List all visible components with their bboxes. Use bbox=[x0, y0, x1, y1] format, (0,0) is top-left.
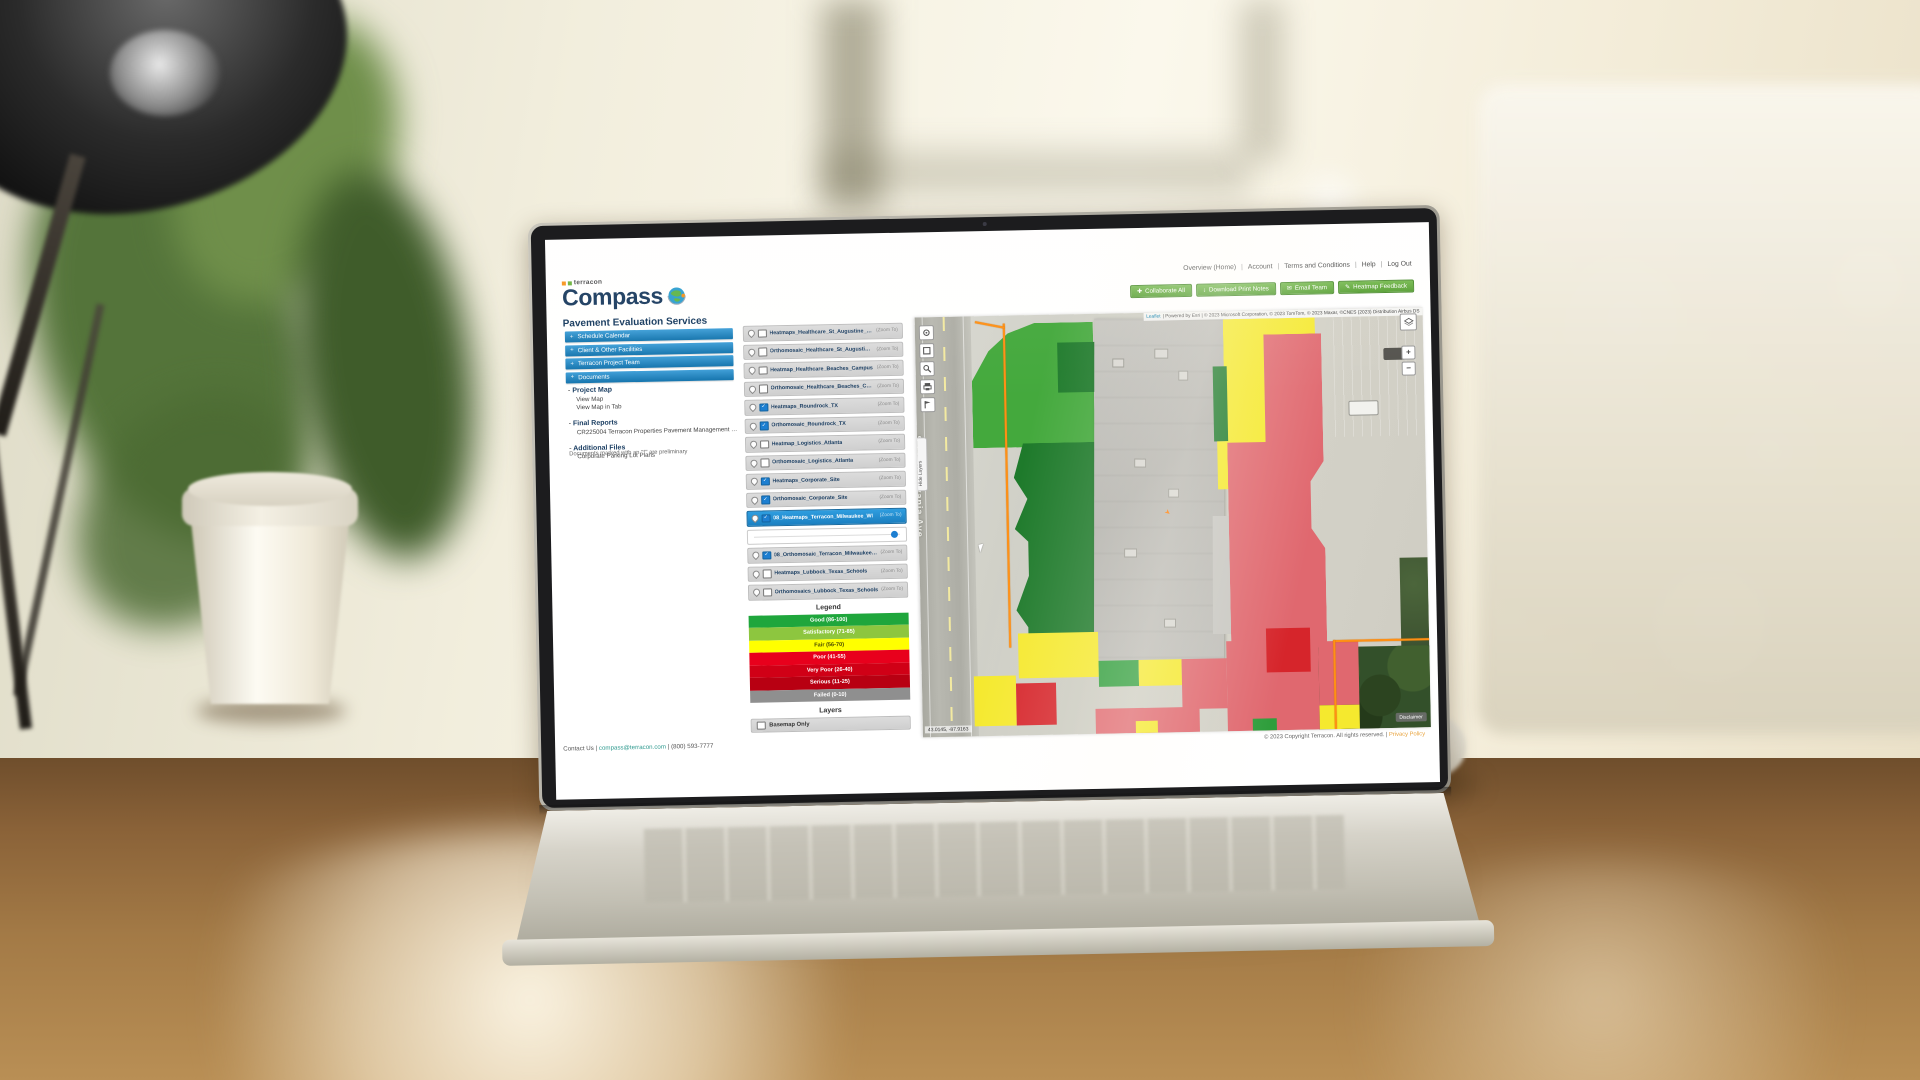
layer-checkbox[interactable]: ✓ bbox=[762, 514, 771, 523]
sidebar-section: Final ReportsCR225004 Terracon Propertie… bbox=[569, 417, 739, 438]
layer-checkbox[interactable] bbox=[758, 347, 767, 356]
sidebar-sections: Project MapView MapView Map in TabFinal … bbox=[568, 384, 740, 470]
copyright-text: © 2023 Copyright Terracon. All rights re… bbox=[1264, 732, 1387, 740]
map-pin-icon bbox=[749, 440, 759, 450]
map-toolbar bbox=[919, 325, 936, 412]
layer-zoom-link[interactable]: (Zoom To) bbox=[877, 365, 899, 370]
extent-button[interactable] bbox=[919, 343, 934, 358]
laptop-bezel: Overview (Home)|Account|Terms and Condit… bbox=[531, 208, 1448, 808]
layer-row-heatmap-healthcare-beaches-campus[interactable]: Heatmap_Healthcare_Beaches_Campus(Zoom T… bbox=[743, 360, 903, 379]
map-pin-icon bbox=[751, 550, 761, 560]
basemap-only-toggle[interactable]: Basemap Only bbox=[751, 716, 911, 733]
download-icon: ↓ bbox=[1203, 287, 1206, 293]
cell-fair bbox=[974, 675, 1017, 726]
layer-checkbox[interactable] bbox=[758, 329, 767, 338]
cell-fair bbox=[1319, 705, 1359, 730]
polygon-good-green-main bbox=[1013, 442, 1099, 658]
locate-button[interactable] bbox=[919, 325, 934, 340]
button-label: Email Team bbox=[1295, 284, 1327, 292]
map-pin-icon bbox=[748, 421, 758, 431]
mouse-cursor bbox=[978, 544, 985, 553]
layer-label: Orthomosaics_Lubbock_Texas_Schools bbox=[775, 587, 879, 595]
globe-icon bbox=[667, 286, 686, 305]
accordion-label: Terracon Project Team bbox=[578, 359, 640, 367]
nav-separator: | bbox=[1381, 261, 1383, 268]
layer-label: Heatmaps_Healthcare_St_Augustine_Campus bbox=[769, 328, 873, 336]
nav-separator: | bbox=[1277, 263, 1279, 270]
layer-zoom-link[interactable]: (Zoom To) bbox=[879, 495, 901, 500]
polygon-good-green-patch bbox=[1057, 342, 1096, 393]
layer-checkbox[interactable]: ✓ bbox=[762, 551, 771, 560]
hide-layers-label: Hide Layers bbox=[918, 461, 924, 487]
map-pin-icon bbox=[749, 458, 759, 468]
expand-icon: + bbox=[570, 361, 574, 367]
email-team-button[interactable]: ✉Email Team bbox=[1280, 281, 1334, 295]
layer-row-orthomosaic-roundrock-tx[interactable]: ✓Orthomosaic_Roundrock_TX(Zoom To) bbox=[745, 415, 905, 434]
expand-icon: + bbox=[570, 334, 574, 340]
document-layer-list: Heatmaps_Healthcare_St_Augustine_Campus(… bbox=[743, 323, 908, 601]
map-pin-icon bbox=[747, 366, 757, 376]
cell-verypoor bbox=[1266, 628, 1311, 673]
layer-zoom-link[interactable]: (Zoom To) bbox=[876, 347, 898, 352]
parking-stall-lines bbox=[1333, 315, 1423, 437]
accordion-label: Schedule Calendar bbox=[577, 332, 630, 340]
layer-checkbox[interactable]: ✓ bbox=[760, 421, 769, 430]
contact-footer: Contact Us | compass@terracon.com | (800… bbox=[563, 743, 713, 753]
layer-row-orthomosaic-logistics-atlanta[interactable]: Orthomosaic_Logistics_Atlanta(Zoom To) bbox=[745, 452, 905, 471]
expand-icon: + bbox=[570, 347, 574, 353]
compass-wordmark: Compass bbox=[562, 284, 663, 309]
layer-zoom-link[interactable]: (Zoom To) bbox=[878, 439, 900, 444]
map-pin-icon bbox=[751, 569, 761, 579]
zoom-box-button[interactable] bbox=[919, 361, 934, 376]
download-print-notes-button[interactable]: ↓Download Print Notes bbox=[1196, 282, 1276, 297]
photo-scene: Overview (Home)|Account|Terms and Condit… bbox=[0, 0, 1920, 1080]
brand-block: terracon Compass bbox=[562, 277, 686, 309]
layer-checkbox[interactable] bbox=[759, 384, 768, 393]
accordion-label: Client & Other Facilities bbox=[578, 345, 643, 353]
layer-label: 08_Orthomosaic_Terracon_Milwaukee_WI bbox=[774, 550, 878, 558]
map-pin-icon bbox=[750, 495, 760, 505]
building-roof bbox=[1094, 319, 1224, 665]
contact-phone: (800) 593-7777 bbox=[671, 743, 713, 751]
hide-layers-tab[interactable]: Hide Layers bbox=[917, 437, 928, 491]
layers-column: Heatmaps_Healthcare_St_Augustine_Campus(… bbox=[743, 323, 911, 733]
layer-checkbox[interactable] bbox=[759, 366, 768, 375]
legend-entry-failed: Failed (0-10) bbox=[750, 687, 910, 703]
contact-label: Contact Us bbox=[563, 745, 594, 753]
app-screen: Overview (Home)|Account|Terms and Condit… bbox=[545, 222, 1440, 800]
nav-link-log-out[interactable]: Log Out bbox=[1387, 260, 1411, 267]
layer-label: Orthomosaic_Logistics_Atlanta bbox=[772, 458, 853, 466]
cell-fair bbox=[1139, 659, 1183, 686]
tree-strip bbox=[1400, 557, 1430, 648]
zoom-controls: + − bbox=[1401, 345, 1416, 375]
map-pin-icon bbox=[746, 329, 756, 339]
cell-fair bbox=[1136, 721, 1158, 733]
webcam bbox=[983, 222, 987, 226]
layer-label: Heatmaps_Corporate_Site bbox=[772, 477, 840, 484]
compass-app: Overview (Home)|Account|Terms and Condit… bbox=[545, 222, 1440, 800]
background-monitor bbox=[1478, 84, 1920, 734]
map-pin-icon bbox=[748, 384, 758, 394]
cup-lid-top bbox=[188, 472, 352, 506]
feedback-icon: ✎ bbox=[1345, 284, 1350, 290]
cup-body bbox=[188, 524, 352, 704]
layer-zoom-link[interactable]: (Zoom To) bbox=[877, 384, 899, 389]
privacy-policy-link[interactable]: Privacy Policy bbox=[1389, 731, 1425, 738]
layer-checkbox[interactable] bbox=[760, 440, 769, 449]
heatmap-feedback-button[interactable]: ✎Heatmap Feedback bbox=[1338, 279, 1414, 294]
site-boundary-line bbox=[975, 321, 1005, 328]
layer-row-orthomosaic-healthcare-st-augustine-campus[interactable]: Orthomosaic_Healthcare_St_Augustine_Camp… bbox=[743, 341, 903, 360]
layer-zoom-link[interactable]: (Zoom To) bbox=[878, 402, 900, 407]
layer-row-08-orthomosaic-terracon-milwaukee-wi[interactable]: ✓08_Orthomosaic_Terracon_Milwaukee_WI(Zo… bbox=[747, 545, 907, 564]
layer-label: 08_Heatmaps_Terracon_Milwaukee_WI bbox=[773, 513, 873, 521]
polygon-good-green-strip bbox=[1213, 366, 1229, 441]
slider-track bbox=[754, 533, 900, 537]
cell-verypoor bbox=[1016, 683, 1057, 726]
layer-row-heatmaps-healthcare-st-augustine-campus[interactable]: Heatmaps_Healthcare_St_Augustine_Campus(… bbox=[743, 323, 903, 342]
layers-title: Layers bbox=[750, 706, 910, 716]
cell-poor bbox=[1318, 641, 1359, 706]
accordion-documents[interactable]: +Documents bbox=[566, 369, 734, 383]
copyright-line: © 2023 Copyright Terracon. All rights re… bbox=[1264, 731, 1425, 740]
accordion-label: Documents bbox=[578, 373, 609, 381]
layer-zoom-link[interactable]: (Zoom To) bbox=[879, 476, 901, 481]
layer-checkbox[interactable]: ✓ bbox=[759, 403, 768, 412]
accordion-client-other-facilities[interactable]: +Client & Other Facilities bbox=[565, 342, 733, 356]
map-pin-icon bbox=[752, 587, 762, 597]
email-icon: ✉ bbox=[1287, 285, 1292, 291]
parked-car-white bbox=[1348, 400, 1378, 416]
layer-zoom-link[interactable]: (Zoom To) bbox=[881, 587, 903, 592]
layer-checkbox[interactable]: ✓ bbox=[761, 477, 770, 486]
layer-zoom-link[interactable]: (Zoom To) bbox=[876, 328, 898, 333]
button-label: Heatmap Feedback bbox=[1353, 283, 1407, 291]
zoom-in-button[interactable]: + bbox=[1401, 345, 1415, 359]
pci-legend: Good (86-100)Satisfactory (71-85)Fair (5… bbox=[749, 612, 911, 703]
layer-row-orthomosaics-lubbock-texas-schools[interactable]: Orthomosaics_Lubbock_Texas_Schools(Zoom … bbox=[748, 582, 908, 601]
layer-label: Orthomosaic_Healthcare_St_Augustine_Camp… bbox=[770, 347, 874, 355]
layer-checkbox[interactable]: ✓ bbox=[761, 495, 770, 504]
section-link[interactable]: View Map in Tab bbox=[576, 401, 738, 413]
layer-row-08-heatmaps-terracon-milwaukee-wi[interactable]: ✓08_Heatmaps_Terracon_Milwaukee_WI(Zoom … bbox=[746, 508, 906, 527]
layer-checkbox[interactable] bbox=[763, 588, 772, 597]
map-pin-icon bbox=[749, 476, 759, 486]
layer-label: Heatmap_Logistics_Atlanta bbox=[772, 440, 843, 447]
nav-link-help[interactable]: Help bbox=[1362, 261, 1376, 268]
leaflet-link[interactable]: Leaflet bbox=[1146, 314, 1161, 319]
collaborate-all-button[interactable]: ✚Collaborate All bbox=[1130, 284, 1192, 298]
layer-row-heatmap-logistics-atlanta[interactable]: Heatmap_Logistics_Atlanta(Zoom To) bbox=[745, 434, 905, 453]
layer-zoom-link[interactable]: (Zoom To) bbox=[879, 458, 901, 463]
layer-label: Heatmap_Healthcare_Beaches_Campus bbox=[770, 365, 873, 373]
opacity-slider-row[interactable] bbox=[747, 526, 907, 545]
print-button[interactable] bbox=[920, 379, 935, 394]
accordion-terracon-project-team[interactable]: +Terracon Project Team bbox=[565, 355, 733, 369]
laptop: Overview (Home)|Account|Terms and Condit… bbox=[528, 205, 1455, 963]
cell-good bbox=[1253, 718, 1277, 730]
legend-title: Legend bbox=[748, 602, 908, 612]
cell-poor bbox=[1182, 658, 1228, 709]
contact-email-link[interactable]: compass@terracon.com bbox=[599, 744, 666, 752]
top-nav: Overview (Home)|Account|Terms and Condit… bbox=[1183, 260, 1412, 272]
layer-zoom-link[interactable]: (Zoom To) bbox=[880, 550, 902, 555]
desk-lamp-bulb bbox=[110, 30, 220, 116]
button-label: Download Print Notes bbox=[1209, 285, 1269, 293]
layer-row-orthomosaic-healthcare-beaches-campus[interactable]: Orthomosaic_Healthcare_Beaches_Campus(Zo… bbox=[744, 378, 904, 397]
map-pin-icon bbox=[748, 403, 758, 413]
zoom-out-button[interactable]: − bbox=[1402, 361, 1416, 375]
map-viewport[interactable]: ➤ S Pennsylvania Ave bbox=[915, 307, 1431, 737]
layer-row-heatmaps-corporate-site[interactable]: ✓Heatmaps_Corporate_Site(Zoom To) bbox=[746, 471, 906, 490]
coffee-cup bbox=[182, 472, 358, 722]
cell-good bbox=[1099, 660, 1140, 687]
sidebar-accordion: +Schedule Calendar+Client & Other Facili… bbox=[565, 328, 734, 383]
layer-zoom-link[interactable]: (Zoom To) bbox=[881, 568, 903, 573]
layer-checkbox[interactable] bbox=[763, 569, 772, 578]
slider-knob[interactable] bbox=[891, 530, 898, 537]
nav-link-account[interactable]: Account bbox=[1248, 263, 1273, 270]
layer-zoom-link[interactable]: (Zoom To) bbox=[878, 421, 900, 426]
layer-row-heatmaps-roundrock-tx[interactable]: ✓Heatmaps_Roundrock_TX(Zoom To) bbox=[744, 397, 904, 416]
nav-separator: | bbox=[1355, 262, 1357, 269]
accordion-schedule-calendar[interactable]: +Schedule Calendar bbox=[565, 328, 733, 342]
window-beam bbox=[820, 150, 1250, 196]
map-pin-icon bbox=[750, 513, 760, 523]
layer-label: Heatmaps_Lubbock_Texas_Schools bbox=[774, 569, 867, 577]
layer-checkbox[interactable] bbox=[760, 458, 769, 467]
disclaimer-button[interactable]: Disclaimer bbox=[1395, 712, 1427, 722]
layer-label: Orthomosaic_Corporate_Site bbox=[773, 495, 848, 503]
section-link[interactable]: CR225004 Terracon Properties Pavement Ma… bbox=[577, 426, 739, 438]
basemap-checkbox[interactable] bbox=[757, 721, 766, 730]
button-label: Collaborate All bbox=[1145, 287, 1185, 295]
layer-zoom-link[interactable]: (Zoom To) bbox=[880, 513, 902, 518]
basemap-switcher-button[interactable] bbox=[1400, 313, 1417, 330]
window-mullion-2 bbox=[1240, 0, 1284, 160]
layer-row-orthomosaic-corporate-site[interactable]: ✓Orthomosaic_Corporate_Site(Zoom To) bbox=[746, 489, 906, 508]
laptop-keyboard-deck bbox=[513, 792, 1479, 943]
page-title: Pavement Evaluation Services bbox=[563, 316, 708, 330]
sidebar-section: Project MapView MapView Map in Tab bbox=[568, 384, 738, 414]
laptop-screen-frame: Overview (Home)|Account|Terms and Condit… bbox=[528, 205, 1452, 811]
basemap-label: Basemap Only bbox=[769, 722, 809, 729]
action-button-row: ✚Collaborate All↓Download Print Notes✉Em… bbox=[1130, 279, 1414, 298]
coordinates-readout: 43.0145, -87.9163 bbox=[925, 725, 972, 733]
layer-label: Orthomosaic_Roundrock_TX bbox=[771, 421, 846, 428]
nav-link-overview-home-[interactable]: Overview (Home) bbox=[1183, 264, 1236, 272]
keyboard-keys bbox=[644, 815, 1345, 903]
cell-fair bbox=[1018, 632, 1099, 679]
nav-link-terms-and-conditions[interactable]: Terms and Conditions bbox=[1284, 262, 1350, 270]
layer-row-heatmaps-lubbock-texas-schools[interactable]: Heatmaps_Lubbock_Texas_Schools(Zoom To) bbox=[748, 563, 908, 582]
map-pin-icon bbox=[747, 347, 757, 357]
layer-label: Orthomosaic_Healthcare_Beaches_Campus bbox=[770, 384, 874, 392]
measure-button[interactable] bbox=[920, 397, 935, 412]
layer-label: Heatmaps_Roundrock_TX bbox=[771, 403, 838, 410]
nav-separator: | bbox=[1241, 264, 1243, 271]
expand-icon: + bbox=[571, 374, 575, 380]
collaborate-icon: ✚ bbox=[1137, 288, 1142, 294]
